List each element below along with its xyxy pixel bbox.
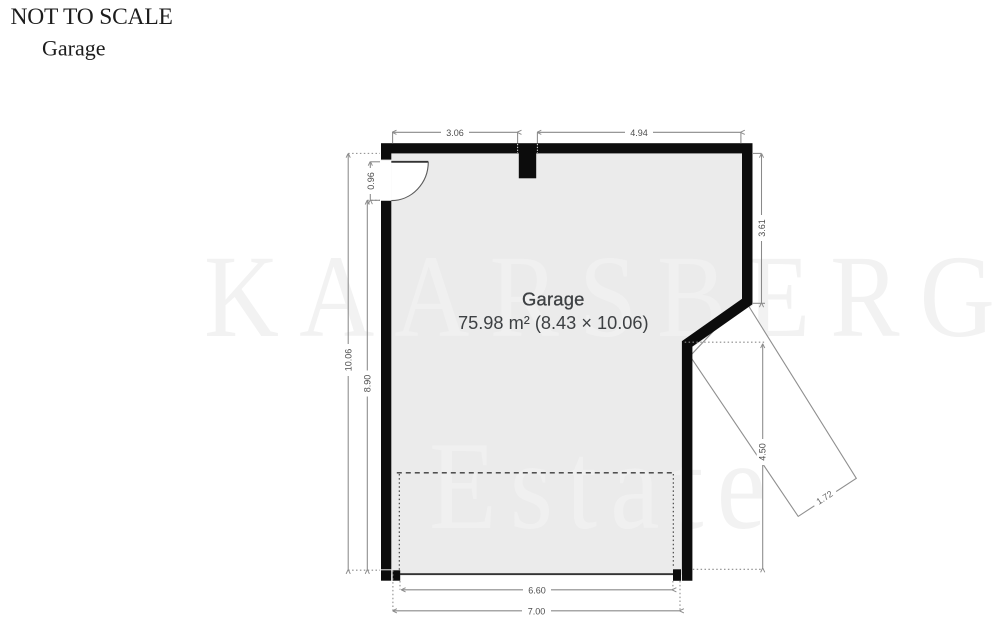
svg-text:Garage: Garage <box>42 36 106 61</box>
svg-text:8.90: 8.90 <box>363 375 373 393</box>
svg-text:4.94: 4.94 <box>630 128 648 138</box>
svg-text:3.61: 3.61 <box>757 219 767 237</box>
svg-text:4.50: 4.50 <box>758 443 768 461</box>
svg-text:6.60: 6.60 <box>528 585 546 595</box>
svg-text:NOT TO SCALE: NOT TO SCALE <box>11 4 173 30</box>
svg-text:Garage: Garage <box>522 289 585 310</box>
svg-text:75.98 m² (8.43 × 10.06): 75.98 m² (8.43 × 10.06) <box>458 313 649 333</box>
svg-text:10.06: 10.06 <box>344 349 354 372</box>
svg-text:0.96: 0.96 <box>366 172 376 190</box>
svg-text:7.00: 7.00 <box>528 606 546 616</box>
svg-text:3.06: 3.06 <box>446 128 464 138</box>
